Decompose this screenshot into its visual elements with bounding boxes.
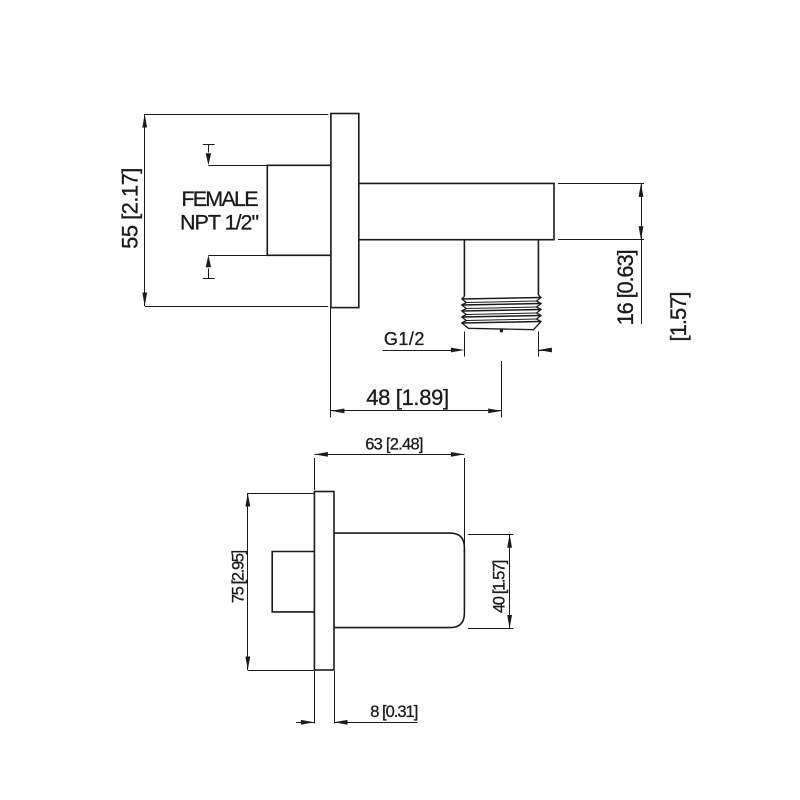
svg-text:63 [2.48]: 63 [2.48]	[365, 436, 423, 454]
svg-text:75 [2.95]: 75 [2.95]	[230, 550, 248, 603]
svg-text:40 [1.57]: 40 [1.57]	[491, 560, 509, 613]
svg-text:NPT 1/2": NPT 1/2"	[180, 211, 258, 235]
svg-text:G1/2: G1/2	[384, 329, 425, 349]
svg-text:[1.57]: [1.57]	[666, 292, 691, 341]
svg-text:FEMALE: FEMALE	[181, 187, 258, 211]
svg-text:8 [0.31]: 8 [0.31]	[370, 703, 417, 721]
svg-text:48 [1.89]: 48 [1.89]	[366, 385, 448, 410]
svg-text:55 [2.17]: 55 [2.17]	[117, 168, 142, 249]
svg-text:16 [0.63]: 16 [0.63]	[613, 251, 638, 326]
